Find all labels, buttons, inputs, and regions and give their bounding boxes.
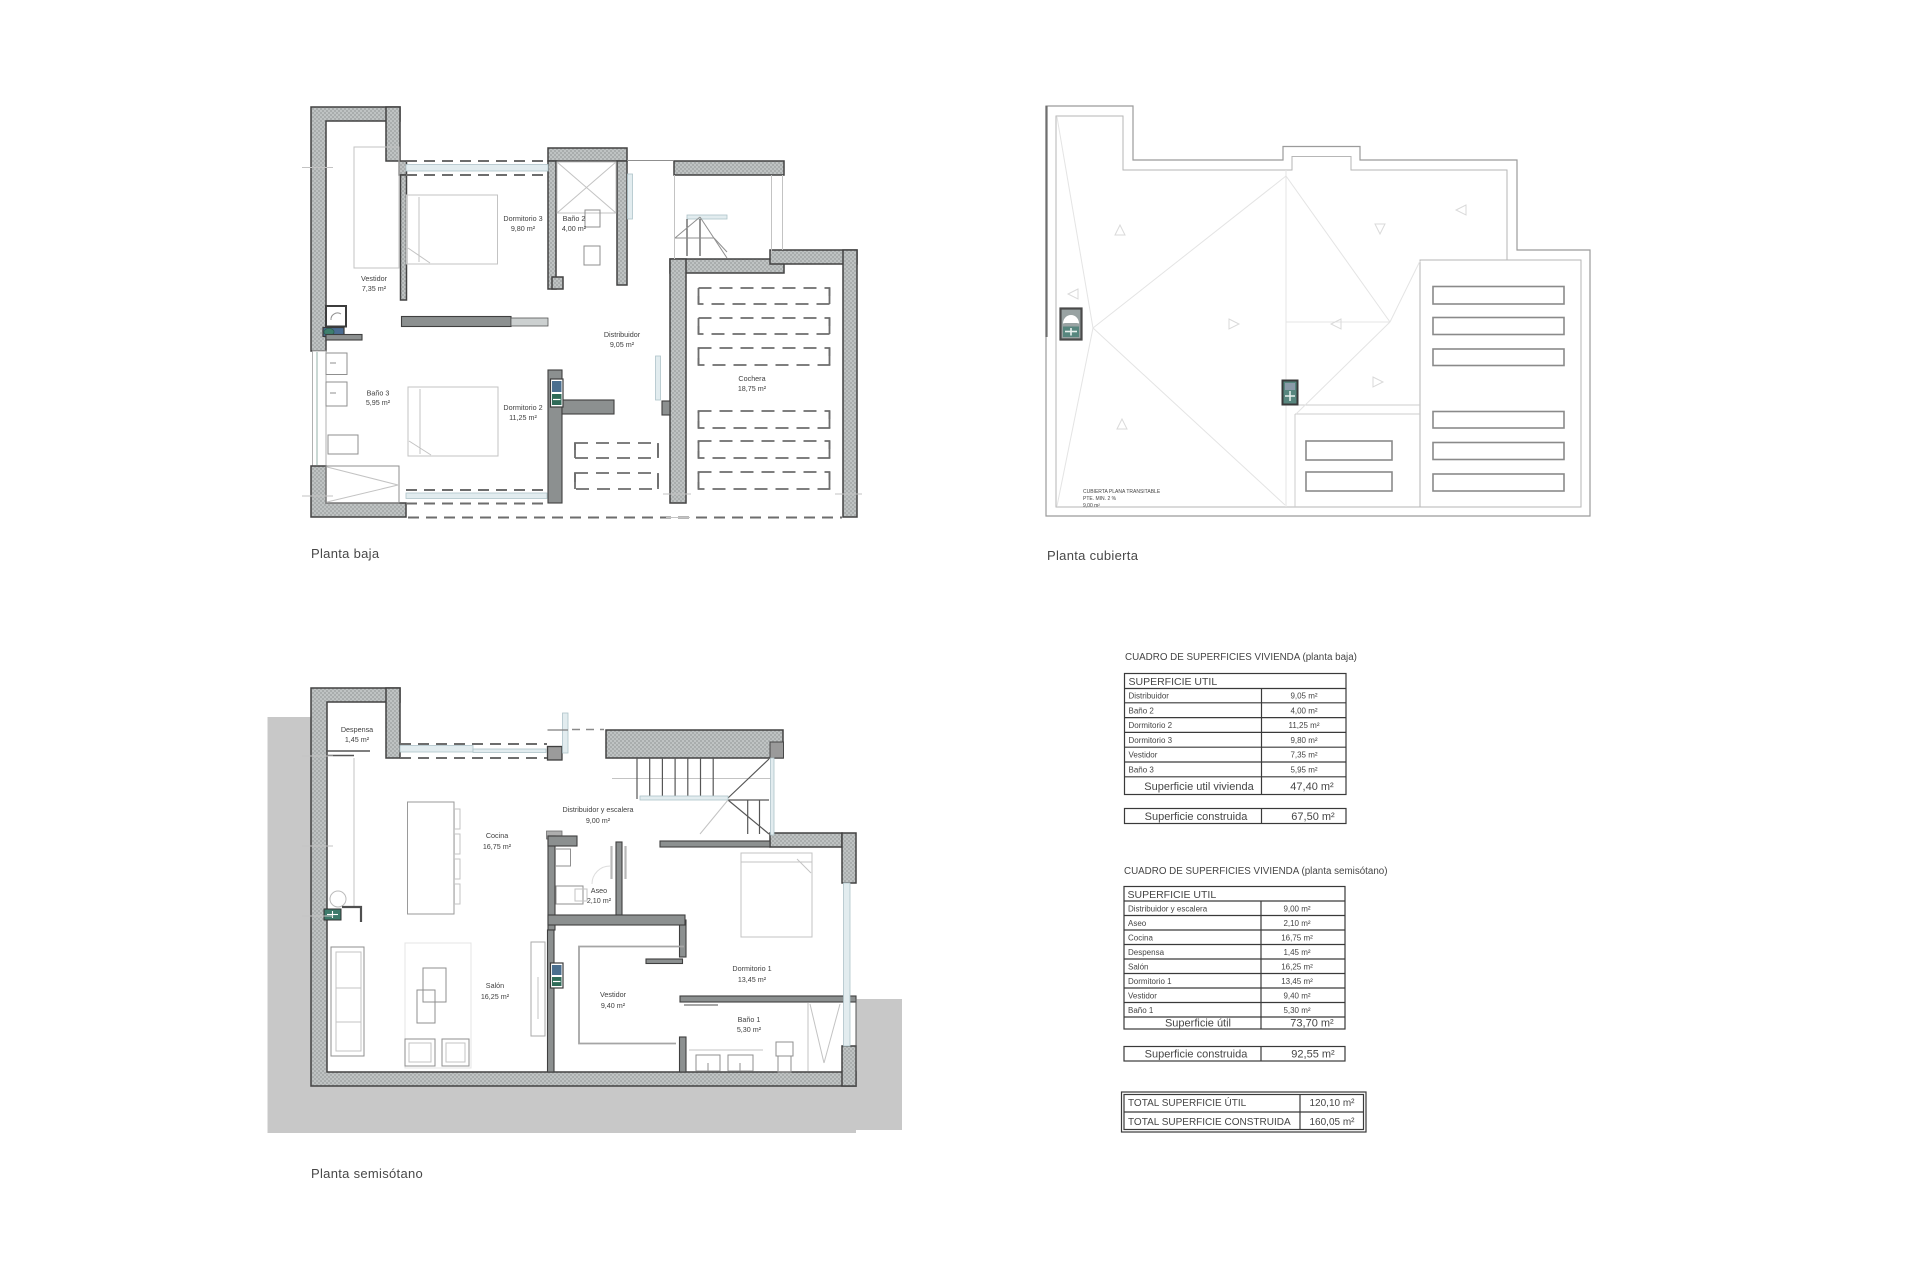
svg-text:73,70 m²: 73,70 m² [1290,1018,1334,1030]
svg-text:Baño 1: Baño 1 [1128,1006,1154,1015]
svg-text:PTE. MIN. 2 %: PTE. MIN. 2 % [1083,496,1117,502]
svg-text:4,00 m²: 4,00 m² [562,224,587,233]
svg-text:Vestidor: Vestidor [1128,992,1157,1001]
svg-text:Dormitorio 1: Dormitorio 1 [1128,977,1172,986]
svg-text:Cocina: Cocina [486,831,508,840]
svg-text:4,00 m²: 4,00 m² [1290,706,1317,715]
svg-text:9,80 m²: 9,80 m² [511,224,536,233]
svg-text:CUADRO DE SUPERFICIES VIVIENDA: CUADRO DE SUPERFICIES VIVIENDA (planta s… [1124,866,1388,877]
svg-text:16,75 m²: 16,75 m² [483,842,512,851]
svg-text:CUADRO DE SUPERFICIES VIVIENDA: CUADRO DE SUPERFICIES VIVIENDA (planta b… [1125,652,1357,663]
svg-text:92,55 m²: 92,55 m² [1291,1049,1335,1061]
svg-text:Vestidor: Vestidor [600,990,627,999]
svg-text:2,10 m²: 2,10 m² [1283,919,1310,928]
svg-text:Aseo: Aseo [1128,919,1147,928]
svg-text:67,50 m²: 67,50 m² [1291,811,1335,823]
svg-text:Distribuidor: Distribuidor [1129,692,1170,701]
svg-text:SUPERFICIE UTIL: SUPERFICIE UTIL [1128,889,1217,901]
svg-text:Baño 2: Baño 2 [563,214,586,223]
svg-text:7,35 m²: 7,35 m² [1290,751,1317,760]
svg-text:CUBIERTA PLANA TRANSITABLE: CUBIERTA PLANA TRANSITABLE [1083,489,1161,495]
svg-text:TOTAL SUPERFICIE ÚTIL: TOTAL SUPERFICIE ÚTIL [1128,1096,1247,1109]
svg-text:Dormitorio 3: Dormitorio 3 [1129,736,1173,745]
svg-text:5,30 m²: 5,30 m² [1283,1006,1310,1015]
svg-text:16,25 m²: 16,25 m² [481,992,510,1001]
svg-text:Superficie construida: Superficie construida [1145,1049,1249,1061]
svg-text:Despensa: Despensa [341,725,373,734]
svg-text:5,95 m²: 5,95 m² [366,398,391,407]
svg-text:TOTAL SUPERFICIE CONSTRUIDA: TOTAL SUPERFICIE CONSTRUIDA [1128,1117,1291,1128]
svg-text:Distribuidor y escalera: Distribuidor y escalera [562,805,633,814]
svg-text:9,00 m²: 9,00 m² [586,816,611,825]
svg-text:2,10 m²: 2,10 m² [587,896,612,905]
svg-text:5,30 m²: 5,30 m² [737,1025,762,1034]
svg-text:Superficie útil: Superficie útil [1165,1018,1231,1030]
svg-text:13,45 m²: 13,45 m² [738,975,767,984]
svg-text:Dormitorio 3: Dormitorio 3 [503,214,542,223]
svg-text:Baño 3: Baño 3 [1129,766,1155,775]
svg-text:47,40 m²: 47,40 m² [1290,781,1334,793]
svg-text:18,75 m²: 18,75 m² [738,384,767,393]
svg-text:160,05 m²: 160,05 m² [1309,1117,1355,1128]
svg-text:9,05 m²: 9,05 m² [610,340,635,349]
svg-text:Cocina: Cocina [1128,934,1153,943]
svg-text:Superficie util vivienda: Superficie util vivienda [1144,781,1254,793]
svg-text:Salón: Salón [486,981,504,990]
svg-text:Baño 2: Baño 2 [1129,706,1155,715]
svg-text:Planta semisótano: Planta semisótano [311,1166,423,1181]
svg-text:Distribuidor: Distribuidor [604,330,641,339]
svg-text:Baño 3: Baño 3 [367,389,390,398]
svg-text:11,25 m²: 11,25 m² [509,413,537,422]
svg-text:9,00 m²: 9,00 m² [1283,905,1310,914]
svg-text:120,10 m²: 120,10 m² [1309,1098,1355,1109]
svg-text:Dormitorio 1: Dormitorio 1 [732,964,771,973]
svg-text:9,40 m²: 9,40 m² [601,1001,626,1010]
svg-text:9,40 m²: 9,40 m² [1283,992,1310,1001]
svg-text:Superficie construida: Superficie construida [1145,811,1249,823]
svg-text:13,45 m²: 13,45 m² [1281,977,1313,986]
svg-text:9,05 m²: 9,05 m² [1290,692,1317,701]
svg-text:SUPERFICIE UTIL: SUPERFICIE UTIL [1129,676,1218,688]
svg-text:Planta baja: Planta baja [311,546,380,561]
svg-text:Planta cubierta: Planta cubierta [1047,548,1139,563]
svg-text:Vestidor: Vestidor [1129,751,1158,760]
svg-text:Vestidor: Vestidor [361,274,388,283]
svg-text:Cochera: Cochera [738,374,765,383]
svg-text:Dormitorio 2: Dormitorio 2 [503,403,542,412]
svg-text:16,25 m²: 16,25 m² [1281,963,1313,972]
svg-text:7,35 m²: 7,35 m² [362,284,387,293]
svg-text:Distribuidor y escalera: Distribuidor y escalera [1128,905,1208,914]
svg-text:9,00 m²: 9,00 m² [1083,503,1100,509]
svg-text:Aseo: Aseo [591,886,607,895]
svg-text:5,95 m²: 5,95 m² [1290,766,1317,775]
svg-text:Despensa: Despensa [1128,948,1165,957]
svg-text:1,45 m²: 1,45 m² [1283,948,1310,957]
svg-text:16,75 m²: 16,75 m² [1281,934,1313,943]
svg-text:Baño 1: Baño 1 [738,1015,761,1024]
svg-text:1,45 m²: 1,45 m² [345,735,370,744]
svg-text:Dormitorio 2: Dormitorio 2 [1129,721,1173,730]
svg-text:Salón: Salón [1128,963,1148,972]
svg-text:9,80 m²: 9,80 m² [1290,736,1317,745]
svg-text:11,25 m²: 11,25 m² [1289,721,1320,730]
